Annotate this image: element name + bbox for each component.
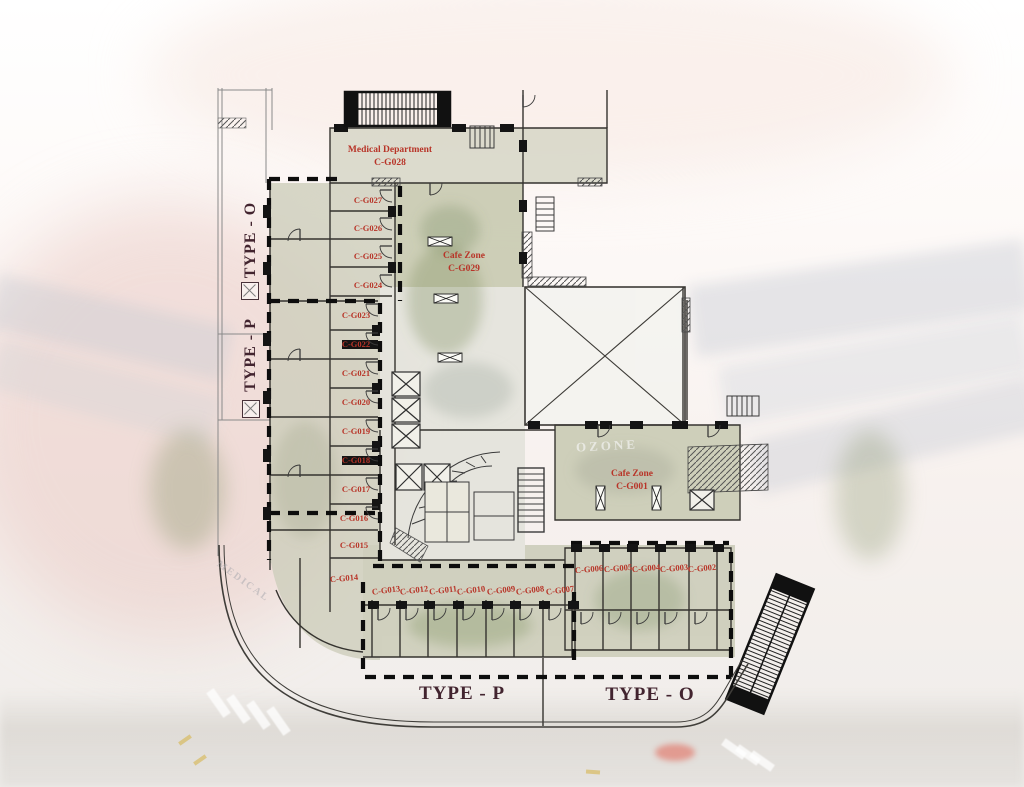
zone-label-type-o-bottom: TYPE - O [605, 684, 694, 706]
area-code: C-G001 [616, 482, 648, 492]
zone-label-type-o-left: TYPE - O [242, 202, 260, 278]
unit-label: C-G021 [342, 368, 370, 378]
area-label-cafe-zone-top: Cafe Zone C-G029 [443, 250, 485, 276]
escalator-bottom-right [726, 574, 813, 713]
unit-label: C-G022 [342, 339, 370, 349]
unit-label: C-G026 [354, 223, 382, 233]
type-o-marker-icon [241, 282, 259, 300]
area-label-cafe-zone-right: Cafe Zone C-G001 [611, 468, 653, 494]
area-label-medical-department: Medical Department C-G028 [348, 144, 432, 170]
plan-linework [0, 0, 1024, 787]
area-code: C-G029 [448, 264, 480, 274]
area-code: C-G028 [374, 158, 406, 168]
type-p-marker-icon [242, 400, 260, 418]
unit-label: C-G024 [354, 280, 382, 290]
unit-label: C-G017 [342, 484, 370, 494]
unit-label: C-G016 [340, 513, 368, 523]
area-name: Cafe Zone [611, 469, 653, 479]
unit-label: C-G019 [342, 426, 370, 436]
unit-label: C-G020 [342, 397, 370, 407]
unit-label: C-G018 [342, 455, 370, 465]
unit-label: C-G023 [342, 310, 370, 320]
zone-label-type-p-bottom: TYPE - P [419, 683, 505, 705]
unit-label: C-G015 [340, 540, 368, 550]
building-sign-watermark: OZONE [576, 436, 639, 455]
area-name: Medical Department [348, 145, 432, 155]
zone-label-type-p-left: TYPE - P [242, 318, 260, 392]
floor-plan-canvas: OZONE MEDICAL TYPE - O TYPE - P TYPE - P… [0, 0, 1024, 787]
unit-label: C-G027 [354, 195, 382, 205]
area-name: Cafe Zone [443, 251, 485, 261]
escalator-top [345, 92, 450, 126]
unit-label: C-G025 [354, 251, 382, 261]
